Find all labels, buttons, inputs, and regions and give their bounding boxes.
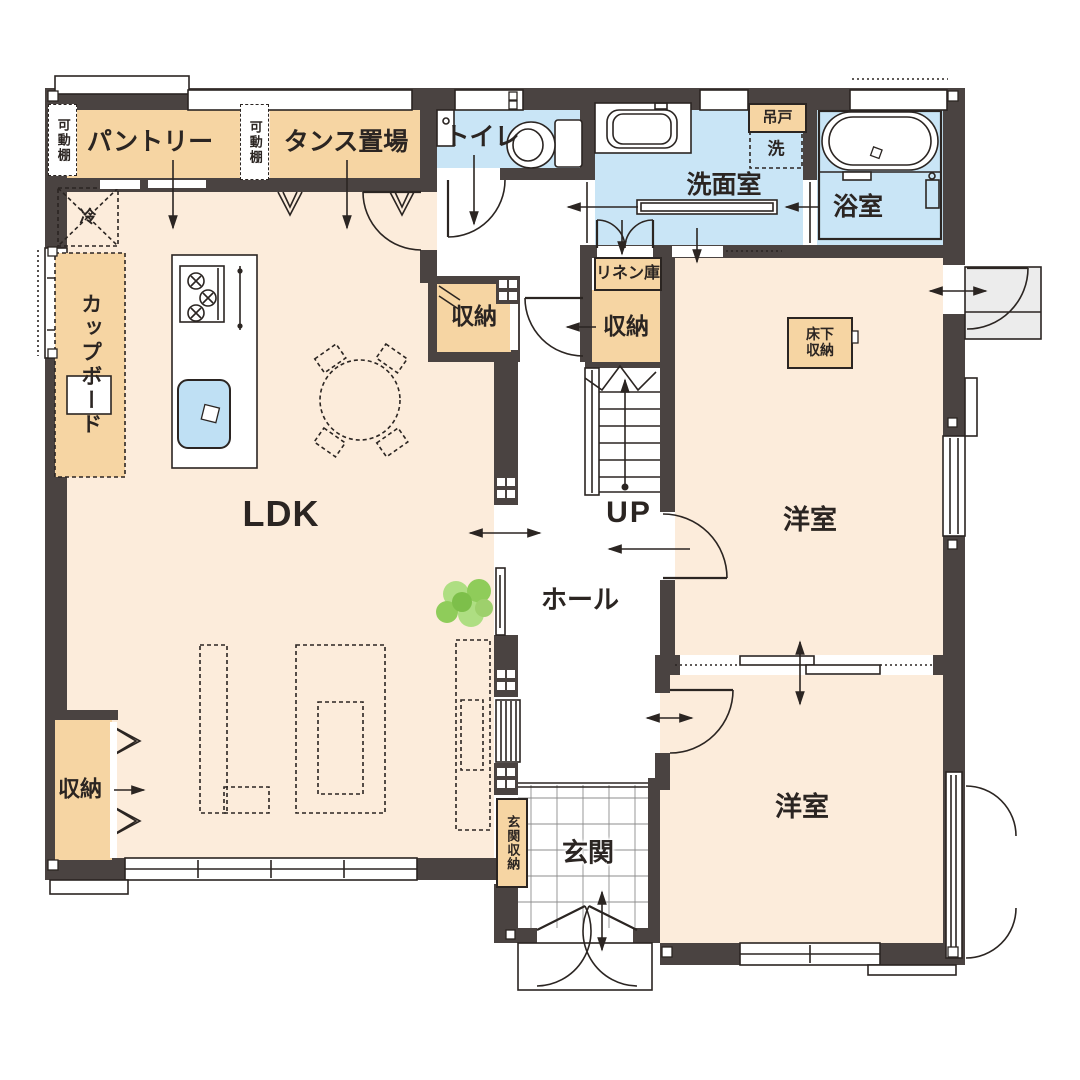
closet-by-stairs-label: 収納: [603, 314, 649, 340]
movable-shelf-label-mid: 可動棚: [240, 104, 269, 180]
floor-plan: パントリー タンス置場 トイレ 洗面室 浴室 洋室 洋室 LDK ホール 玄関 …: [0, 0, 1080, 1080]
linen-label: リネン庫: [594, 257, 662, 291]
entrance-storage-label: 玄関収納: [496, 798, 528, 888]
room-label-ldk: LDK: [243, 494, 320, 534]
washer-label: 洗: [768, 139, 785, 158]
closet-corridor-label: 収納: [451, 304, 497, 330]
stairs-up-label: UP: [606, 496, 652, 530]
cupboard-label: カップボード: [57, 258, 123, 472]
room-label-pantry: パントリー: [87, 128, 213, 156]
room-label-hall: ホール: [541, 585, 619, 614]
refrigerator-label: 冷: [80, 207, 97, 226]
room-label-toilet: トイレ: [444, 123, 519, 151]
room-label-entrance: 玄関: [562, 838, 614, 867]
room-label-bedroom-bottom: 洋室: [775, 792, 829, 822]
room-label-washroom: 洗面室: [686, 171, 761, 199]
room-label-bathroom: 浴室: [833, 193, 883, 221]
movable-shelf-label-left: 可動棚: [48, 104, 77, 176]
kitchen-island: [172, 255, 257, 468]
room-label-bedroom-top: 洋室: [783, 505, 837, 535]
underfloor-storage-label: 床下収納: [788, 318, 852, 368]
room-label-tansu: タンス置場: [284, 128, 409, 156]
floor-plan-drawing: [0, 0, 1080, 1080]
entrance-tile: [518, 783, 652, 990]
washroom-counter: [637, 200, 777, 214]
closet-ldk-label: 収納: [58, 778, 102, 803]
hanging-cupboard-label: 吊戸: [748, 103, 807, 133]
washbasin: [595, 103, 691, 153]
